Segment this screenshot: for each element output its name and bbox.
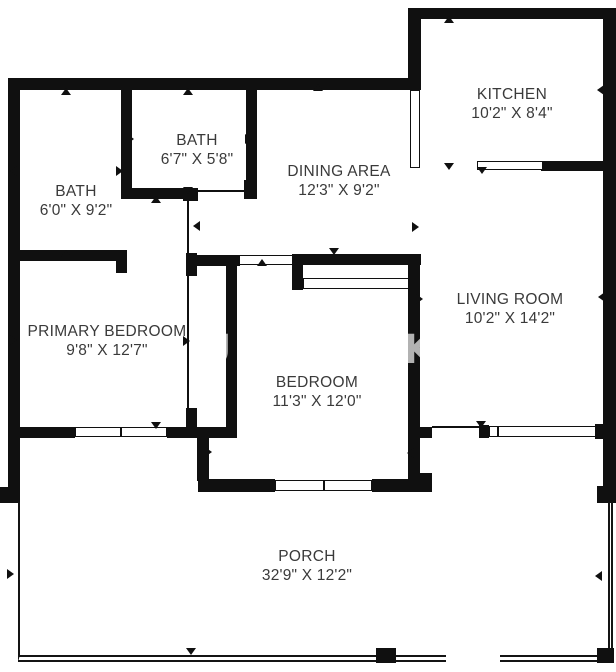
- closet-doors: [303, 278, 409, 289]
- room-dimensions: 11'3" X 12'0": [272, 392, 361, 411]
- wall: [408, 8, 616, 19]
- window: [489, 426, 597, 437]
- direction-marker: [61, 250, 71, 257]
- room-dimensions: 12'3" X 9'2": [287, 181, 390, 200]
- room-name: BEDROOM: [272, 373, 361, 392]
- room-name: KITCHEN: [471, 85, 552, 104]
- direction-marker: [127, 134, 134, 144]
- wall: [292, 265, 303, 290]
- porch-post: [597, 648, 614, 663]
- room-name: PORCH: [262, 547, 352, 566]
- room-label-bath-2: BATH 6'7" X 5'8": [161, 131, 234, 169]
- opening-line: [187, 199, 189, 253]
- wall: [186, 408, 197, 427]
- wall: [0, 487, 17, 503]
- direction-marker: [595, 571, 602, 581]
- direction-marker: [407, 448, 414, 458]
- wall: [420, 473, 432, 487]
- room-name: BATH: [161, 131, 234, 150]
- wall: [541, 161, 603, 171]
- door-opening-line: [432, 426, 479, 428]
- direction-marker: [10, 335, 17, 345]
- direction-marker: [329, 248, 339, 255]
- wall: [603, 8, 616, 486]
- room-label-bedroom: BEDROOM 11'3" X 12'0": [272, 373, 361, 411]
- wall: [8, 427, 75, 438]
- kitchen-counter: [410, 90, 420, 168]
- direction-marker: [416, 294, 423, 304]
- direction-marker: [205, 447, 212, 457]
- wall: [597, 486, 616, 503]
- room-dimensions: 10'2" X 8'4": [471, 104, 552, 123]
- wall: [121, 90, 132, 199]
- wall: [408, 8, 421, 90]
- wall: [197, 433, 209, 481]
- direction-marker: [116, 166, 123, 176]
- direction-marker: [477, 167, 487, 174]
- room-dimensions: 32'9" X 12'2": [262, 566, 352, 585]
- direction-marker: [313, 84, 323, 91]
- direction-marker: [476, 421, 486, 428]
- wall: [8, 78, 20, 503]
- direction-marker: [598, 292, 605, 302]
- watermark-letter: U: [199, 330, 231, 370]
- direction-marker: [10, 166, 17, 176]
- room-dimensions: 10'2" X 14'2": [457, 309, 564, 328]
- porch-post: [376, 648, 396, 663]
- direction-marker: [183, 88, 193, 95]
- direction-marker: [151, 422, 161, 429]
- room-label-dining-area: DINING AREA 12'3" X 9'2": [287, 162, 390, 200]
- room-label-bath-1: BATH 6'0" X 9'2": [40, 182, 113, 220]
- direction-marker: [444, 163, 454, 170]
- room-label-porch: PORCH 32'9" X 12'2": [262, 547, 352, 585]
- wall: [420, 427, 432, 438]
- wall: [116, 250, 127, 273]
- watermark-letter: K: [403, 330, 434, 370]
- direction-marker: [597, 85, 604, 95]
- direction-marker: [257, 259, 267, 266]
- room-dimensions: 6'0" X 9'2": [40, 201, 113, 220]
- direction-marker: [412, 222, 419, 232]
- wall: [244, 180, 257, 199]
- direction-marker: [61, 88, 71, 95]
- window: [275, 480, 372, 491]
- floor-plan: U K BATH 6'0" X 9'2" BATH 6'7" X 5'8" DI…: [0, 0, 616, 672]
- room-name: PRIMARY BEDROOM: [28, 322, 187, 341]
- room-dimensions: 6'7" X 5'8": [161, 150, 234, 169]
- direction-marker: [183, 187, 193, 194]
- wall: [186, 253, 197, 276]
- direction-marker: [186, 648, 196, 655]
- door-opening-line: [198, 190, 244, 192]
- room-name: DINING AREA: [287, 162, 390, 181]
- direction-marker: [193, 221, 200, 231]
- wall: [167, 427, 237, 438]
- room-label-primary-bedroom: PRIMARY BEDROOM 9'8" X 12'7": [28, 322, 187, 360]
- room-dimensions: 9'8" X 12'7": [28, 341, 187, 360]
- room-label-living-room: LIVING ROOM 10'2" X 14'2": [457, 290, 564, 328]
- room-label-kitchen: KITCHEN 10'2" X 8'4": [471, 85, 552, 123]
- porch-step-opening: [446, 651, 500, 665]
- room-name: LIVING ROOM: [457, 290, 564, 309]
- direction-marker: [444, 16, 454, 23]
- direction-marker: [245, 134, 252, 144]
- direction-marker: [151, 196, 161, 203]
- wall: [292, 254, 421, 265]
- room-name: BATH: [40, 182, 113, 201]
- wall: [198, 479, 275, 492]
- wall: [595, 424, 616, 439]
- direction-marker: [7, 569, 14, 579]
